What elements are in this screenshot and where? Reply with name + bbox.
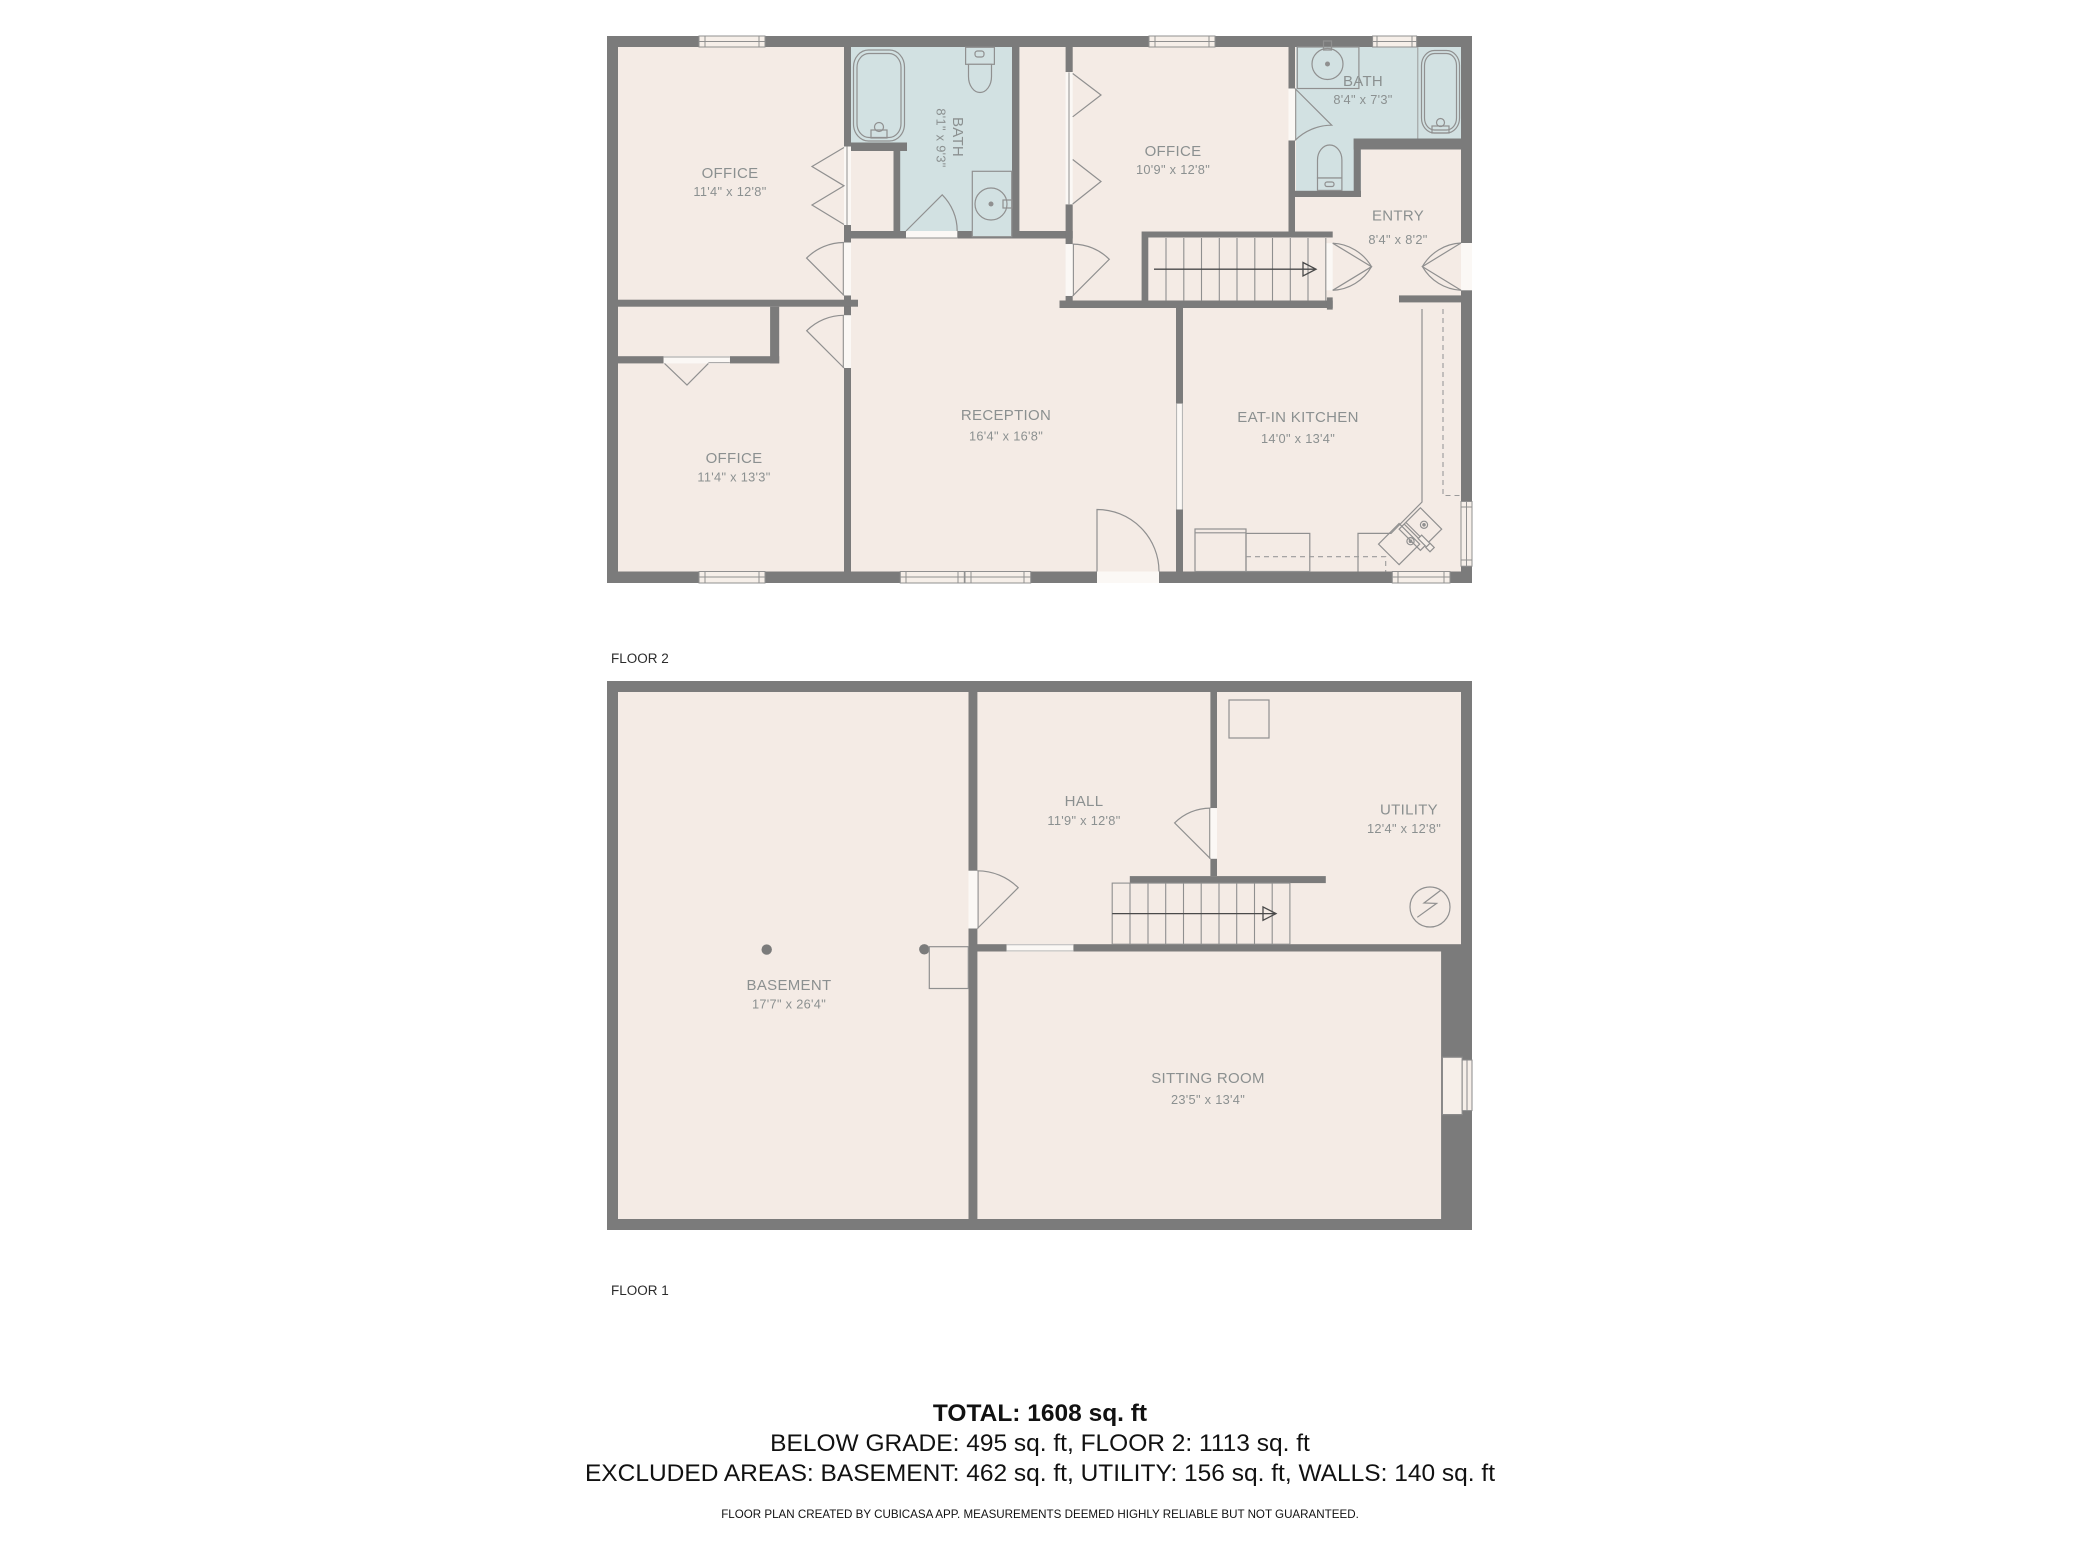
svg-text:RECEPTION: RECEPTION — [961, 407, 1051, 424]
svg-text:23'5" x 13'4": 23'5" x 13'4" — [1171, 1092, 1245, 1107]
svg-text:BELOW GRADE: 495 sq. ft, FLOOR: BELOW GRADE: 495 sq. ft, FLOOR 2: 1113 s… — [770, 1430, 1310, 1457]
svg-text:EAT-IN KITCHEN: EAT-IN KITCHEN — [1237, 409, 1358, 426]
svg-text:FLOOR 2: FLOOR 2 — [611, 651, 669, 666]
svg-text:ENTRY: ENTRY — [1372, 208, 1424, 225]
svg-text:12'4" x 12'8": 12'4" x 12'8" — [1367, 821, 1441, 836]
svg-text:11'4" x 12'8": 11'4" x 12'8" — [693, 184, 766, 199]
svg-text:EXCLUDED AREAS: BASEMENT: 462: EXCLUDED AREAS: BASEMENT: 462 sq. ft, UT… — [585, 1460, 1495, 1487]
svg-text:8'4" x 7'3": 8'4" x 7'3" — [1333, 92, 1392, 107]
svg-text:TOTAL: 1608 sq. ft: TOTAL: 1608 sq. ft — [933, 1400, 1147, 1427]
svg-text:BATH: BATH — [1343, 73, 1383, 90]
svg-text:UTILITY: UTILITY — [1380, 802, 1438, 819]
svg-text:17'7" x 26'4": 17'7" x 26'4" — [752, 997, 826, 1012]
svg-text:8'4" x 8'2": 8'4" x 8'2" — [1368, 232, 1427, 247]
svg-text:8'1" x 9'3": 8'1" x 9'3" — [934, 108, 949, 167]
svg-text:11'4" x 13'3": 11'4" x 13'3" — [697, 470, 770, 485]
svg-text:FLOOR 1: FLOOR 1 — [611, 1283, 669, 1298]
svg-text:FLOOR PLAN CREATED BY CUBICASA: FLOOR PLAN CREATED BY CUBICASA APP. MEAS… — [721, 1508, 1359, 1521]
svg-text:16'4" x 16'8": 16'4" x 16'8" — [969, 429, 1043, 444]
svg-text:SITTING ROOM: SITTING ROOM — [1151, 1070, 1265, 1087]
svg-text:OFFICE: OFFICE — [1145, 143, 1202, 160]
svg-text:BASEMENT: BASEMENT — [747, 977, 832, 994]
svg-text:10'9" x 12'8": 10'9" x 12'8" — [1136, 162, 1210, 177]
svg-text:HALL: HALL — [1065, 793, 1104, 810]
svg-text:OFFICE: OFFICE — [706, 450, 763, 467]
svg-text:BATH: BATH — [949, 117, 966, 157]
svg-text:14'0" x 13'4": 14'0" x 13'4" — [1261, 431, 1335, 446]
svg-text:OFFICE: OFFICE — [702, 165, 759, 182]
svg-text:11'9" x 12'8": 11'9" x 12'8" — [1047, 813, 1120, 828]
